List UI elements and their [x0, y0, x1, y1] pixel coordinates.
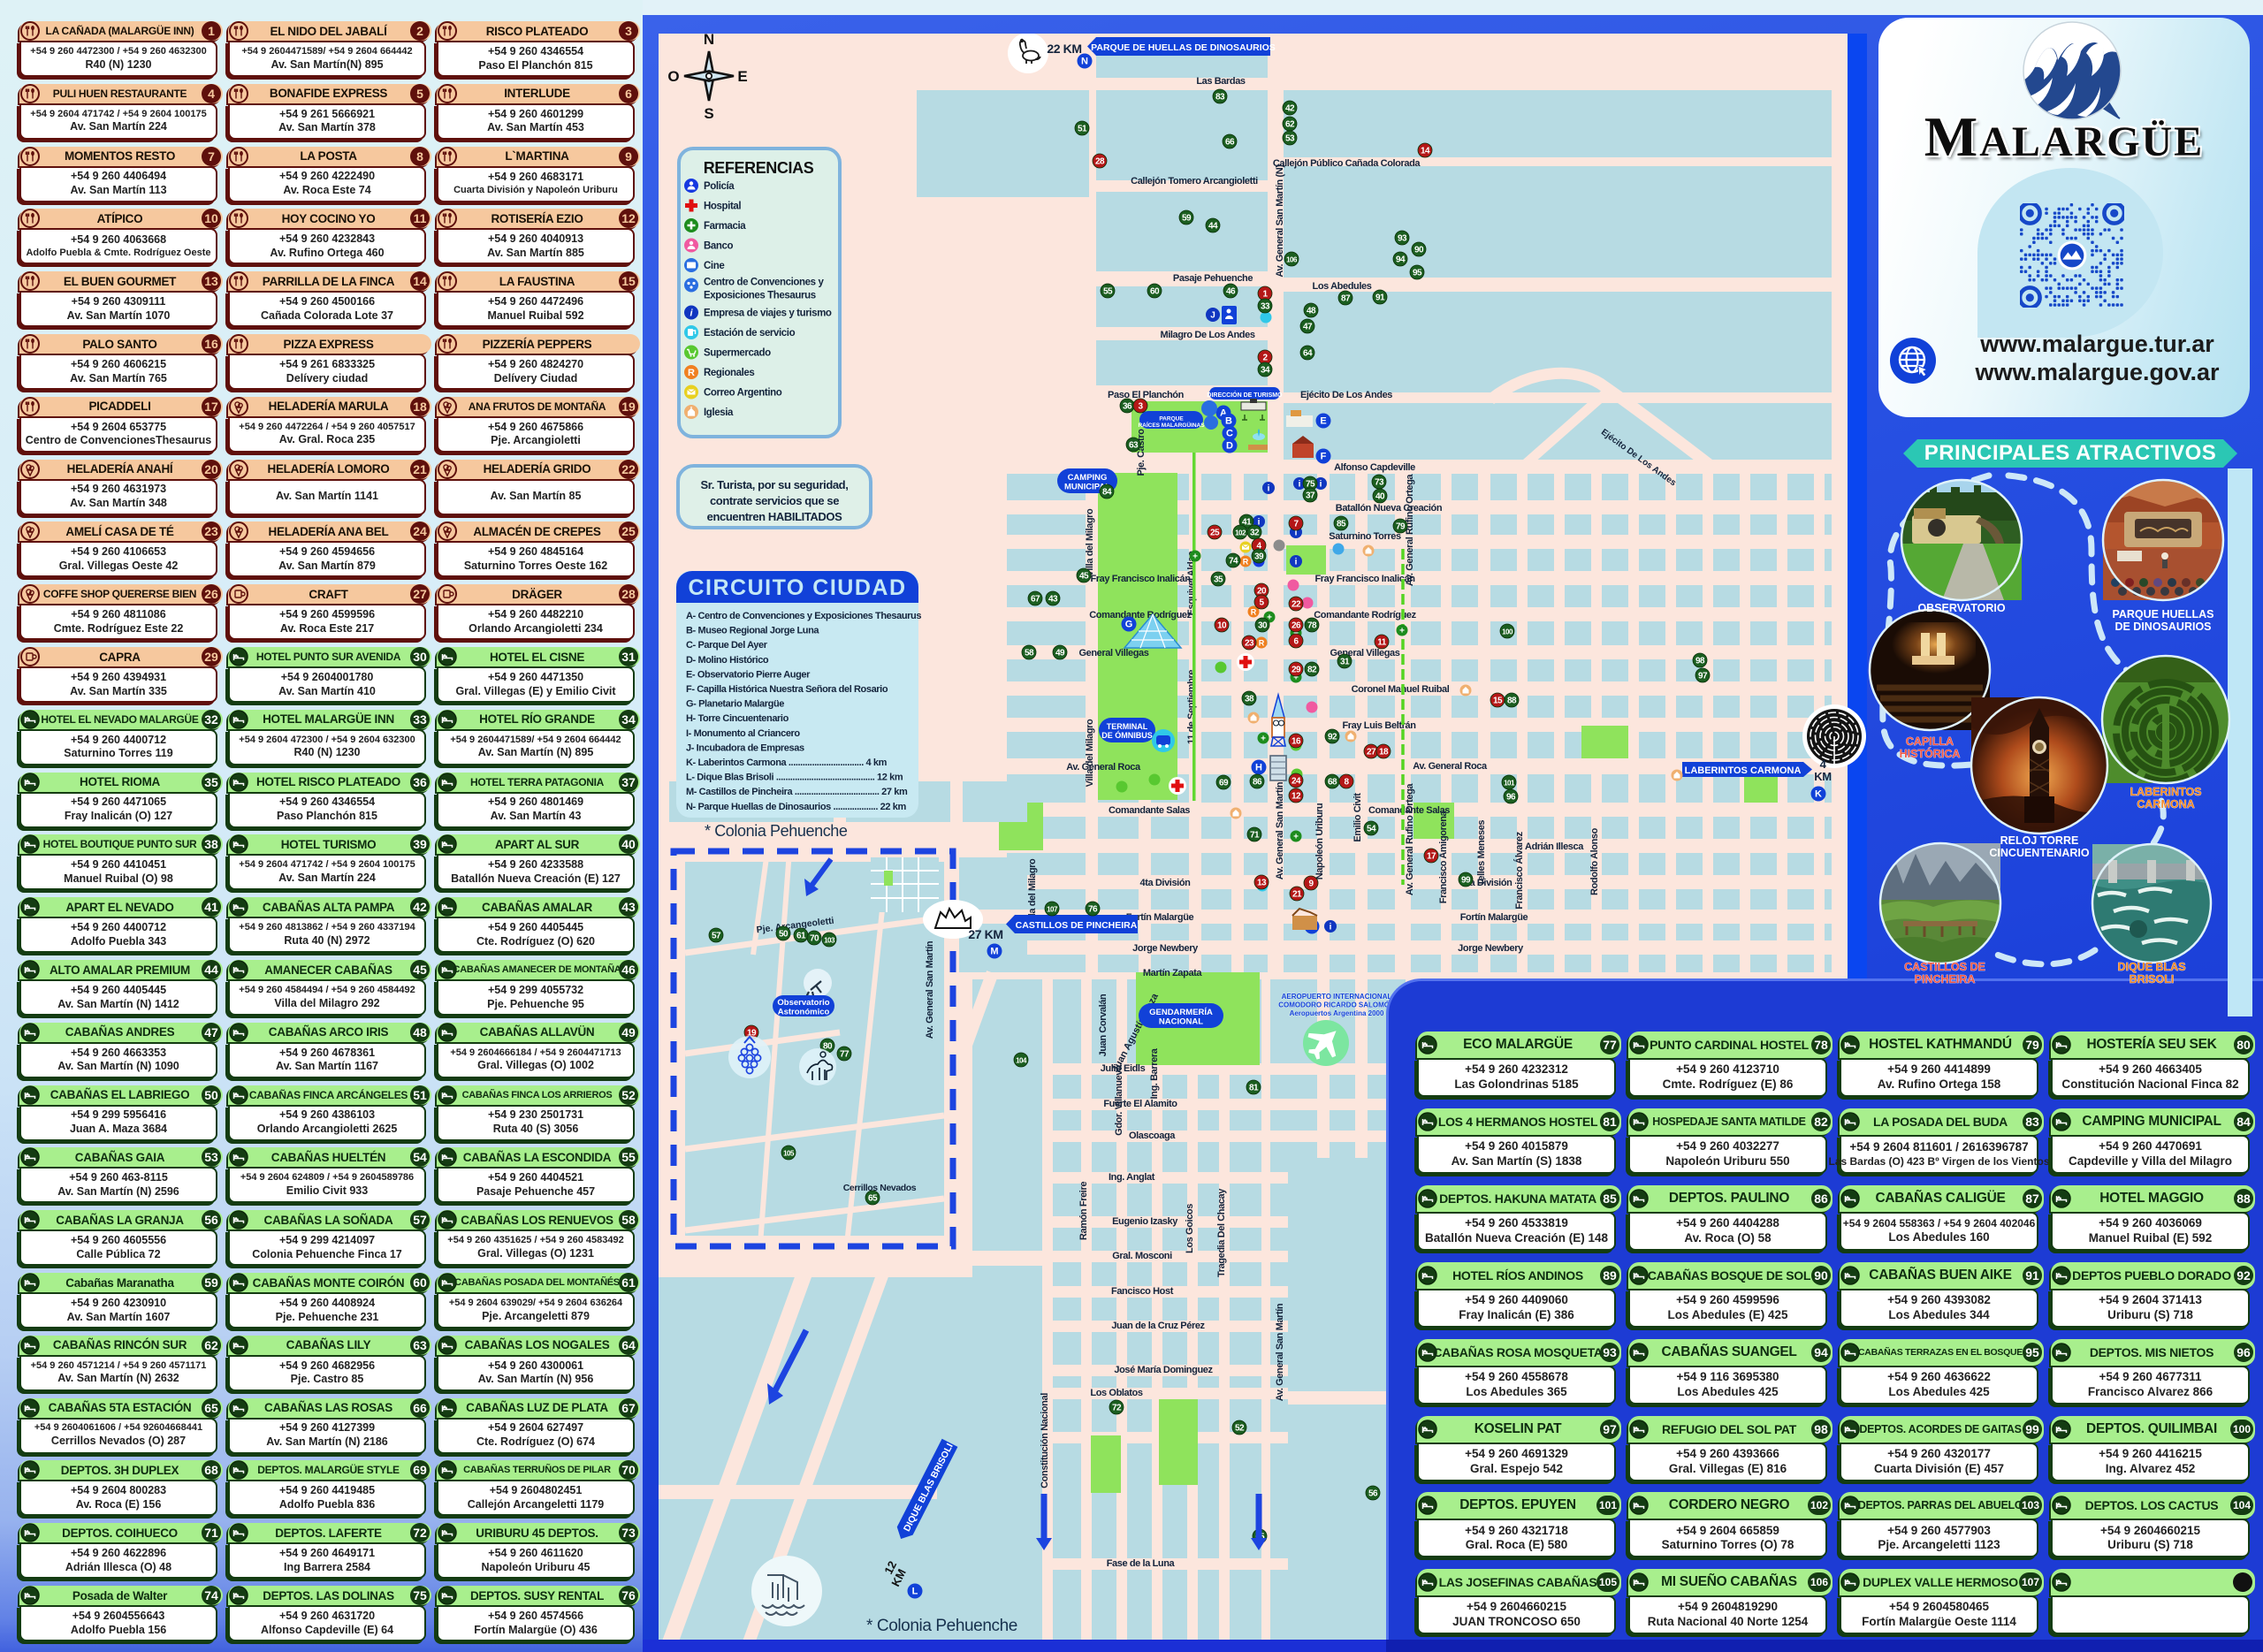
svg-text:+: + [1399, 626, 1405, 636]
svg-text:Fortín Malargüe: Fortín Malargüe [1460, 912, 1528, 923]
svg-text:51: 51 [1078, 124, 1087, 133]
svg-text:47: 47 [1303, 322, 1313, 331]
svg-text:E: E [737, 68, 747, 85]
svg-text:4ta División: 4ta División [1140, 878, 1192, 888]
svg-text:91: 91 [1375, 293, 1385, 302]
svg-text:67: 67 [1031, 594, 1040, 604]
svg-text:46: 46 [1226, 286, 1236, 296]
svg-text:Av. General San Martín: Av. General San Martín [925, 940, 935, 1039]
svg-text:45: 45 [1079, 571, 1089, 581]
svg-text:44: 44 [1208, 221, 1218, 231]
svg-text:i: i [1320, 479, 1322, 489]
svg-text:REFERENCIAS: REFERENCIAS [704, 159, 814, 177]
svg-text:DIRECCIÓN DE TURISMO: DIRECCIÓN DE TURISMO [1207, 391, 1283, 399]
svg-text:100: 100 [1502, 628, 1513, 636]
svg-text:Ramón Freire: Ramón Freire [1078, 1182, 1089, 1240]
svg-text:42: 42 [1285, 103, 1295, 113]
svg-text:Olascoaga: Olascoaga [1129, 1131, 1176, 1141]
svg-text:AEROPUERTO INTERNACIONAL: AEROPUERTO INTERNACIONAL [1282, 993, 1392, 1001]
svg-text:C- Parque Del Ayer: C- Parque Del Ayer [686, 640, 768, 651]
svg-text:Jorge Newbery: Jorge Newbery [1458, 943, 1524, 954]
svg-text:R: R [1259, 638, 1265, 647]
svg-text:85: 85 [1337, 519, 1346, 529]
svg-text:+: + [1261, 734, 1266, 743]
svg-text:José María Dominguez: José María Dominguez [1114, 1365, 1213, 1375]
svg-text:26: 26 [1292, 620, 1301, 630]
svg-text:103: 103 [824, 936, 835, 944]
svg-text:74: 74 [1229, 556, 1238, 566]
svg-text:B- Museo Regional Jorge Luna: B- Museo Regional Jorge Luna [686, 626, 819, 636]
svg-text:77: 77 [840, 1049, 850, 1059]
svg-text:DE DINOSAURIOS: DE DINOSAURIOS [2114, 620, 2211, 633]
svg-text:LABERINTOS CARMONA: LABERINTOS CARMONA [1685, 765, 1802, 776]
svg-text:Cerrillos Nevados: Cerrillos Nevados [843, 1183, 917, 1193]
svg-text:N: N [704, 34, 714, 48]
svg-text:72: 72 [1112, 1403, 1122, 1412]
svg-text:87: 87 [1341, 293, 1351, 303]
svg-text:34: 34 [1261, 365, 1270, 375]
svg-text:65: 65 [868, 1193, 878, 1203]
svg-text:i: i [1268, 483, 1270, 493]
svg-text:53: 53 [1285, 133, 1295, 143]
svg-text:40: 40 [1375, 491, 1385, 501]
svg-text:79: 79 [1396, 521, 1406, 531]
svg-text:RELOJ TORRE: RELOJ TORRE [2000, 834, 2079, 847]
svg-text:31: 31 [1340, 657, 1350, 666]
svg-text:17: 17 [1427, 851, 1436, 861]
svg-text:98: 98 [1695, 656, 1705, 666]
svg-text:Gral. Mosconi: Gral. Mosconi [1112, 1251, 1172, 1261]
svg-text:97: 97 [1698, 671, 1708, 681]
svg-text:N: N [1081, 57, 1088, 67]
svg-text:Francisco Álvarez: Francisco Álvarez [1513, 831, 1525, 909]
svg-text:92: 92 [1328, 732, 1337, 742]
svg-text:Villa del Milagro: Villa del Milagro [1085, 719, 1095, 787]
svg-text:KM: KM [1814, 770, 1831, 783]
svg-text:39: 39 [1254, 552, 1264, 561]
svg-text:TERMINAL: TERMINAL [1107, 722, 1148, 731]
svg-text:30: 30 [1258, 620, 1268, 630]
svg-text:22 KM: 22 KM [1047, 42, 1081, 56]
svg-text:15: 15 [1493, 696, 1503, 705]
svg-text:Banco: Banco [704, 241, 734, 252]
svg-text:73: 73 [1375, 477, 1384, 487]
svg-text:86: 86 [1253, 777, 1262, 787]
svg-text:i: i [1299, 479, 1301, 489]
svg-text:G: G [1125, 620, 1133, 630]
svg-text:Francisco Amigorena: Francisco Amigorena [1438, 810, 1449, 903]
svg-text:33: 33 [1261, 301, 1270, 311]
svg-text:Av. General Roca: Av. General Roca [1066, 762, 1141, 773]
svg-text:contrate servicios que se: contrate servicios que se [710, 494, 839, 507]
svg-text:24: 24 [1292, 776, 1301, 786]
svg-text:Fray Francisco Inalicán: Fray Francisco Inalicán [1090, 574, 1191, 584]
svg-text:25: 25 [1210, 528, 1220, 537]
svg-text:93: 93 [1398, 233, 1407, 243]
svg-text:12: 12 [1292, 791, 1301, 801]
svg-text:Coronel Manuel Ruibal: Coronel Manuel Ruibal [1352, 684, 1450, 695]
svg-text:Fase de la Luna: Fase de la Luna [1107, 1558, 1176, 1569]
svg-text:37: 37 [1306, 491, 1315, 500]
svg-text:R: R [688, 368, 695, 378]
svg-text:Observatorio: Observatorio [777, 998, 829, 1008]
svg-text:84: 84 [1102, 487, 1112, 497]
svg-text:Rodolfo Alonso: Rodolfo Alonso [1589, 827, 1600, 895]
svg-text:PARQUE DE HUELLAS DE DINOSAURI: PARQUE DE HUELLAS DE DINOSAURIOS [1091, 42, 1276, 53]
svg-text:Paso El Planchón: Paso El Planchón [1108, 390, 1185, 400]
svg-text:Astronómico: Astronómico [778, 1007, 830, 1016]
svg-text:59: 59 [1182, 213, 1192, 223]
svg-text:29: 29 [1292, 665, 1301, 674]
svg-text:J- Incubadora de Empresas: J- Incubadora de Empresas [686, 742, 804, 753]
svg-text:D- Molino Histórico: D- Molino Histórico [686, 655, 769, 666]
svg-text:96: 96 [1506, 792, 1516, 802]
svg-text:10: 10 [1217, 620, 1227, 630]
svg-text:F- Capilla Histórica Nuestra: F- Capilla Histórica Nuestra Señora del … [686, 684, 888, 695]
svg-text:69: 69 [1219, 778, 1229, 788]
svg-text:Av. General San Martín: Av. General San Martín [1275, 781, 1285, 879]
svg-text:Av. General Rufino Ortega: Av. General Rufino Ortega [1405, 783, 1415, 896]
svg-text:Farmacia: Farmacia [704, 221, 746, 232]
svg-text:48: 48 [1307, 306, 1316, 316]
svg-text:18: 18 [1379, 747, 1389, 757]
svg-text:Hospital: Hospital [704, 202, 741, 212]
svg-text:36: 36 [1123, 401, 1132, 411]
svg-text:Ejécito De Los Andes: Ejécito De Los Andes [1300, 390, 1392, 400]
svg-text:Sr. Turista, por su seguridad,: Sr. Turista, por su seguridad, [701, 478, 849, 491]
svg-text:Av. General San Martín (N): Av. General San Martín (N) [1275, 164, 1285, 278]
svg-text:Juan de la Cruz Pérez: Juan de la Cruz Pérez [1111, 1321, 1205, 1331]
svg-text:50: 50 [779, 929, 789, 939]
svg-text:Adrián Illesca: Adrián Illesca [1525, 841, 1584, 852]
svg-text:22: 22 [1292, 599, 1301, 609]
svg-text:HISTÓRICA: HISTÓRICA [1900, 747, 1961, 760]
svg-text:E: E [1320, 416, 1326, 427]
svg-text:Fray Luis Beltrán: Fray Luis Beltrán [1342, 720, 1416, 731]
svg-text:R: R [1243, 557, 1249, 566]
svg-text:GENDARMERÍA: GENDARMERÍA [1149, 1008, 1213, 1017]
svg-text:58: 58 [1025, 648, 1034, 658]
svg-text:Fancisco Host: Fancisco Host [1111, 1286, 1174, 1297]
svg-text:Estación de servicio: Estación de servicio [704, 328, 796, 339]
svg-text:Las Bardas: Las Bardas [1196, 76, 1246, 87]
svg-text:COMODORO RICARDO SALOMÓN: COMODORO RICARDO SALOMÓN [1278, 1001, 1395, 1009]
svg-text:83: 83 [1215, 92, 1225, 102]
svg-text:64: 64 [1303, 348, 1313, 358]
svg-text:88: 88 [1507, 696, 1517, 705]
svg-text:55: 55 [1103, 286, 1113, 296]
svg-text:Martín Zapata: Martín Zapata [1143, 968, 1203, 978]
svg-text:L- Dique Blas Brisoli ........: L- Dique Blas Brisoli ..................… [686, 773, 903, 783]
svg-text:106: 106 [1286, 255, 1298, 263]
svg-text:54: 54 [1367, 824, 1376, 834]
svg-text:99: 99 [1461, 875, 1471, 885]
svg-text:J: J [1210, 310, 1215, 320]
svg-text:CAMPING: CAMPING [1068, 473, 1108, 483]
svg-text:Napoleón Uriburu: Napoleón Uriburu [1314, 803, 1325, 880]
svg-text:104: 104 [1016, 1056, 1027, 1064]
svg-text:B: B [1225, 416, 1232, 427]
svg-text:Constitución Nacional: Constitución Nacional [1040, 1393, 1050, 1488]
svg-text:Pje. Castro: Pje. Castro [1136, 429, 1147, 476]
svg-text:F: F [1321, 452, 1327, 462]
svg-text:* Colonia Pehuenche: * Colonia Pehuenche [866, 1617, 1017, 1635]
svg-text:CARMONA: CARMONA [2137, 798, 2194, 811]
svg-text:L: L [912, 1587, 918, 1597]
svg-text:Milagro De Los Andes: Milagro De Los Andes [1160, 330, 1254, 340]
svg-text:76: 76 [1088, 904, 1098, 914]
svg-text:16: 16 [1292, 736, 1301, 746]
svg-text:PARQUE HUELLAS: PARQUE HUELLAS [2112, 608, 2213, 620]
svg-text:C: C [1226, 429, 1233, 439]
svg-text:Los Goicos: Los Goicos [1185, 1204, 1195, 1253]
svg-text:General Villegas: General Villegas [1078, 648, 1148, 659]
svg-text:Emilio Civit: Emilio Civit [1352, 793, 1363, 842]
svg-text:BRISOLI: BRISOLI [2130, 973, 2175, 986]
svg-text:Callejón Tomero Arcangioletti: Callejón Tomero Arcangioletti [1131, 176, 1258, 187]
svg-text:78: 78 [1307, 620, 1317, 630]
svg-text:RAÍCES MALARGÜINAS: RAÍCES MALARGÜINAS [1138, 421, 1205, 429]
svg-text:K- Laberintos Carmona .......: K- Laberintos Carmona ..................… [686, 757, 888, 768]
svg-text:23: 23 [1245, 638, 1254, 648]
svg-text:H- Torre Cincuentenario: H- Torre Cincuentenario [686, 713, 789, 724]
svg-text:71: 71 [1250, 830, 1260, 840]
svg-text:Eugenio Izasky: Eugenio Izasky [1112, 1216, 1178, 1227]
svg-text:E- Observatorio Pierre Auger: E- Observatorio Pierre Auger [686, 669, 811, 680]
svg-text:11: 11 [1377, 637, 1387, 647]
svg-text:Gdor. Villanueva: Gdor. Villanueva [1114, 1064, 1124, 1136]
svg-text:Jorge Newbery: Jorge Newbery [1132, 943, 1199, 954]
svg-text:PINCHEIRA: PINCHEIRA [1915, 973, 1976, 986]
svg-text:Comandante Rodríguez: Comandante Rodríguez [1314, 610, 1416, 620]
svg-text:K: K [1815, 789, 1822, 800]
svg-text:66: 66 [1225, 137, 1235, 147]
svg-text:95: 95 [1413, 268, 1422, 278]
svg-text:63: 63 [1129, 440, 1139, 450]
svg-text:Juan Corvalán: Juan Corvalán [1098, 993, 1109, 1056]
svg-text:38: 38 [1245, 694, 1254, 704]
svg-text:32: 32 [1250, 528, 1260, 537]
svg-text:35: 35 [1214, 575, 1223, 584]
svg-text:+: + [1293, 832, 1299, 841]
svg-text:I- Monumento al Criancero: I- Monumento al Criancero [686, 728, 800, 739]
svg-text:CIRCUITO CIUDAD: CIRCUITO CIUDAD [688, 575, 906, 600]
svg-text:CASTILLOS DE: CASTILLOS DE [1904, 961, 1985, 973]
svg-text:CAPILLA: CAPILLA [1906, 735, 1954, 748]
svg-text:Saturnino Torres: Saturnino Torres [1329, 531, 1401, 542]
svg-text:N- Parque Huellas de Dinosauri: N- Parque Huellas de Dinosaurios .......… [686, 802, 906, 812]
svg-text:Comandante Salas: Comandante Salas [1109, 805, 1190, 816]
svg-text:Exposiciones Thesaurus: Exposiciones Thesaurus [704, 291, 816, 301]
svg-text:107: 107 [1047, 905, 1058, 913]
svg-text:DE ÓMNIBUS: DE ÓMNIBUS [1101, 730, 1153, 740]
svg-text:Batallón Nueva Creación: Batallón Nueva Creación [1336, 503, 1443, 514]
svg-text:Regionales: Regionales [704, 368, 754, 378]
svg-text:Correo Argentino: Correo Argentino [704, 388, 782, 399]
svg-text:CINCUENTENARIO: CINCUENTENARIO [1989, 847, 2089, 859]
svg-text:PARQUE: PARQUE [1159, 415, 1184, 422]
svg-text:D: D [1226, 441, 1233, 452]
svg-text:NACIONAL: NACIONAL [1159, 1016, 1203, 1026]
svg-text:27 KM: 27 KM [968, 927, 1002, 941]
svg-text:Supermercado: Supermercado [704, 348, 771, 359]
svg-text:43: 43 [1048, 594, 1058, 604]
svg-text:H: H [1255, 763, 1262, 773]
svg-text:Av. General Roca: Av. General Roca [1413, 761, 1488, 772]
svg-text:LABERINTOS: LABERINTOS [2130, 786, 2201, 798]
svg-text:Ing. Barrera: Ing. Barrera [1149, 1047, 1160, 1099]
svg-text:S: S [704, 105, 713, 122]
svg-text:14: 14 [1421, 146, 1430, 156]
svg-text:M: M [990, 947, 998, 957]
svg-text:49: 49 [1055, 648, 1065, 658]
svg-text:81: 81 [1249, 1083, 1259, 1092]
svg-text:Comandante Rodríguez: Comandante Rodríguez [1089, 610, 1192, 620]
svg-text:Empresa de viajes y turismo: Empresa de viajes y turismo [704, 308, 832, 319]
svg-text:Ing. Anglat: Ing. Anglat [1109, 1172, 1155, 1183]
svg-text:Callejón Público Cañada Colora: Callejón Público Cañada Colorada [1273, 158, 1421, 169]
svg-text:OBSERVATORIO: OBSERVATORIO [1917, 602, 2005, 614]
svg-text:Policía: Policía [704, 181, 735, 192]
svg-text:52: 52 [1235, 1423, 1245, 1433]
svg-text:R: R [1251, 607, 1257, 616]
svg-text:62: 62 [1285, 119, 1295, 129]
svg-text:* Colonia Pehuenche: * Colonia Pehuenche [705, 822, 848, 840]
svg-text:101: 101 [1504, 779, 1515, 787]
svg-text:94: 94 [1396, 255, 1406, 264]
svg-text:27: 27 [1367, 747, 1376, 757]
svg-text:Aeropuertos Argentina 2000: Aeropuertos Argentina 2000 [1290, 1009, 1384, 1017]
svg-text:105: 105 [783, 1149, 795, 1157]
svg-text:102: 102 [1235, 529, 1246, 537]
svg-text:Villa del Milagro: Villa del Milagro [1085, 508, 1095, 576]
svg-text:CASTILLOS DE PINCHEIRA: CASTILLOS DE PINCHEIRA [1016, 920, 1138, 931]
svg-text:13: 13 [1257, 878, 1267, 887]
svg-text:57: 57 [712, 931, 721, 940]
svg-text:56: 56 [1368, 1488, 1378, 1498]
svg-text:Alfonso Capdeville: Alfonso Capdeville [1334, 462, 1415, 473]
svg-text:28: 28 [1095, 156, 1105, 166]
svg-text:82: 82 [1307, 665, 1317, 674]
svg-text:Centro de Convenciones y: Centro de Convenciones y [704, 278, 824, 288]
svg-text:21: 21 [1292, 889, 1302, 899]
svg-text:Tragedia Del Chacay: Tragedia Del Chacay [1216, 1188, 1227, 1277]
svg-text:+: + [1192, 552, 1198, 561]
svg-text:4: 4 [1820, 757, 1827, 771]
svg-text:DIQUE BLAS: DIQUE BLAS [2117, 961, 2185, 973]
svg-text:G- Planetario Malargüe: G- Planetario Malargüe [686, 699, 784, 710]
svg-text:Los Abedules: Los Abedules [1313, 281, 1372, 292]
svg-text:encuentren HABILITADOS: encuentren HABILITADOS [707, 510, 842, 523]
svg-text:68: 68 [1328, 777, 1337, 787]
svg-text:Fray Francisco Inalicán: Fray Francisco Inalicán [1314, 574, 1415, 584]
svg-text:70: 70 [810, 933, 819, 943]
svg-text:Av. General San Martín: Av. General San Martín [1275, 1303, 1285, 1401]
svg-text:Cine: Cine [704, 261, 724, 271]
svg-text:Pasaje Pehuenche: Pasaje Pehuenche [1173, 273, 1253, 284]
svg-text:M- Castillos de Pincheira ....: M- Castillos de Pincheira ..............… [686, 787, 908, 797]
svg-text:Telles Meneses: Telles Meneses [1476, 820, 1487, 887]
svg-text:60: 60 [1150, 286, 1160, 296]
svg-text:i: i [1295, 557, 1298, 567]
svg-text:Iglesia: Iglesia [704, 407, 734, 418]
svg-text:90: 90 [1414, 245, 1424, 255]
svg-text:A- Centro de Convenciones y Ex: A- Centro de Convenciones y Exposiciones… [686, 611, 921, 621]
svg-text:i: i [1330, 922, 1332, 932]
svg-text:Los Oblatos: Los Oblatos [1090, 1388, 1142, 1398]
svg-text:O: O [667, 68, 679, 85]
svg-text:61: 61 [796, 931, 806, 940]
